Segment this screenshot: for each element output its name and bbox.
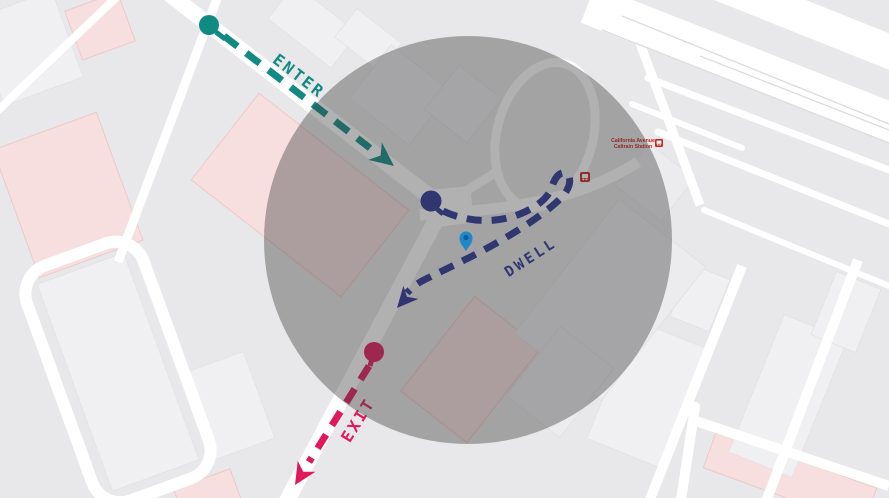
station-transit-icon [655, 139, 663, 147]
map-canvas: California Avenue Caltrain Station ENTER… [0, 0, 889, 498]
station-icon-glyph [660, 144, 662, 145]
station-icon-glyph [657, 141, 662, 144]
pin-inner-dot [463, 235, 468, 240]
station-icon-glyph [657, 144, 659, 145]
map-screenshot: California Avenue Caltrain Station ENTER… [0, 0, 889, 498]
